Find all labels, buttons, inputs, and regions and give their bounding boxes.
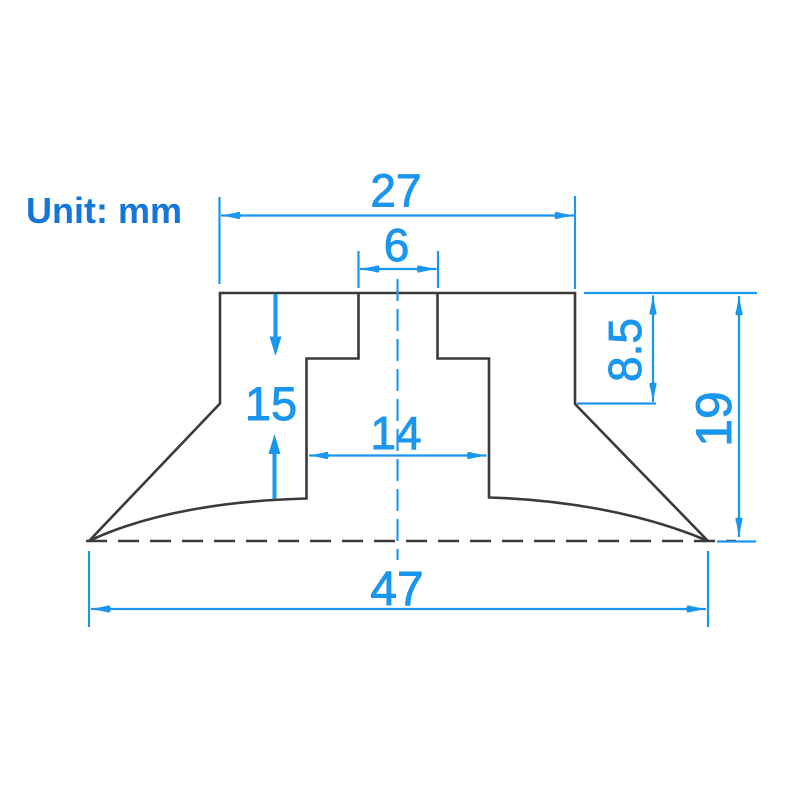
- svg-text:Unit: mm: Unit: mm: [26, 190, 182, 231]
- svg-text:8.5: 8.5: [599, 318, 651, 382]
- svg-text:15: 15: [245, 377, 297, 430]
- svg-text:27: 27: [370, 165, 421, 217]
- svg-text:6: 6: [384, 219, 410, 271]
- svg-text:14: 14: [370, 407, 421, 459]
- svg-text:47: 47: [370, 563, 423, 616]
- svg-text:19: 19: [686, 391, 742, 447]
